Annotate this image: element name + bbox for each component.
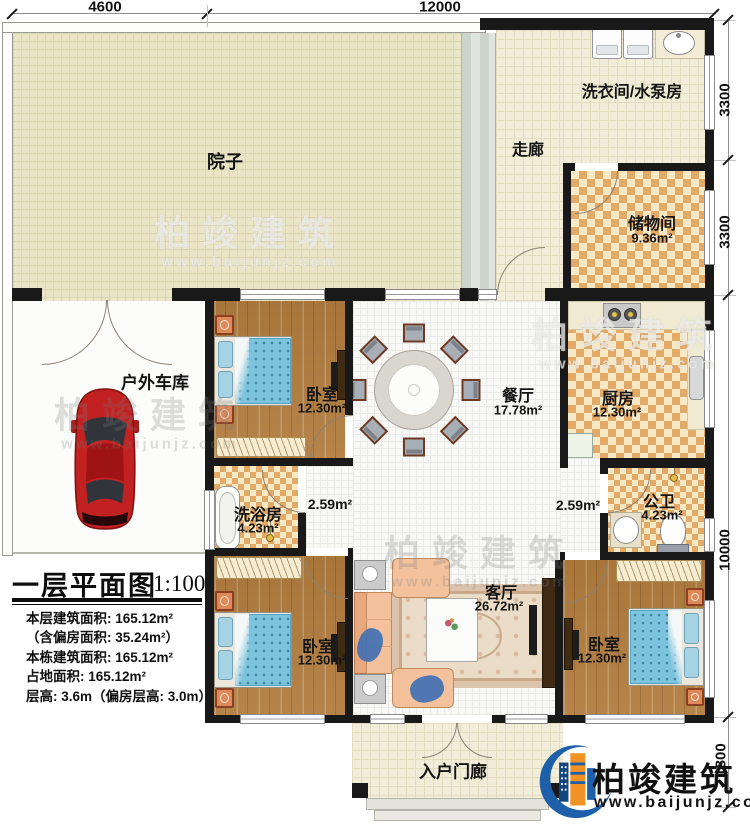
fridge-icon [567, 433, 593, 458]
sheet-fold [668, 610, 682, 684]
pillow-icon [218, 341, 233, 368]
room-area-shower: 4.23m² [237, 521, 278, 536]
room-area-bedroom-left: 12.30m² [298, 653, 346, 668]
wall [563, 163, 571, 295]
chair-icon [462, 379, 481, 401]
window [240, 289, 325, 300]
porch-step [366, 798, 549, 810]
room-label-corridor: 走廊 [512, 136, 544, 160]
room-label-laundry: 洗衣间/水泵房 [582, 78, 682, 102]
dimension-label: 3300 [717, 83, 734, 116]
floor-plan: 柏竣建筑 www.baijunjz.com 柏竣建筑 www.baijunjz.… [0, 0, 750, 833]
company-url-text: www.baijunjz.com [594, 794, 750, 812]
wall [348, 548, 353, 556]
ceiling-lamp-icon [670, 474, 678, 482]
wall [618, 163, 705, 171]
stat-line: （含偏房面积: 35.24m²） [26, 628, 212, 647]
room-area-kitchen: 12.30m² [593, 405, 641, 420]
pillow-icon [218, 617, 233, 647]
wall [205, 715, 240, 723]
sheet-fold [235, 614, 249, 686]
wall [205, 458, 353, 466]
wall [12, 288, 42, 301]
room-label-garage: 户外车库 [121, 369, 189, 394]
stat-line: 本层建筑面积: 165.12m² [26, 609, 212, 628]
wall [705, 130, 714, 190]
wall [405, 715, 422, 723]
wall [325, 288, 385, 301]
kitchen-sink-icon [689, 356, 704, 400]
wall [685, 715, 714, 723]
dimension-line [728, 20, 729, 807]
chair-icon [403, 324, 425, 343]
wall [492, 715, 505, 723]
room-area-dining: 17.78m² [494, 403, 542, 418]
window [704, 600, 715, 698]
tv-cabinet [542, 578, 556, 688]
wall [560, 552, 565, 560]
room-label-porch: 入户门廊 [419, 758, 487, 783]
wall [560, 301, 568, 458]
wall [345, 288, 353, 415]
window [585, 714, 685, 724]
flower-decor [442, 616, 460, 634]
burner-icon [608, 308, 621, 321]
window [505, 714, 548, 724]
window [704, 55, 715, 130]
title-underline [12, 604, 202, 605]
table-lamp-icon [362, 566, 378, 582]
car-icon [70, 386, 140, 532]
wall [705, 428, 714, 518]
wall [555, 560, 563, 715]
wall [600, 468, 608, 474]
room-area-hall-left: 2.59m² [308, 496, 352, 512]
dimension-label: 12000 [419, 0, 461, 16]
room-label-courtyard: 院子 [207, 148, 243, 174]
dimension-tick [708, 8, 719, 19]
wardrobe-icon [616, 560, 702, 582]
window [704, 190, 715, 265]
table-lamp-icon [362, 680, 378, 696]
tv-icon [529, 605, 537, 655]
faucet-icon [676, 33, 681, 38]
washing-machine-icon [623, 27, 653, 59]
nightstand-icon [215, 591, 234, 611]
wall [325, 715, 370, 723]
pillow-icon [684, 647, 699, 678]
wall [705, 265, 714, 330]
dining-table-center [408, 384, 420, 396]
pillow-icon [684, 613, 699, 644]
fence [2, 22, 486, 33]
dimension-tick [6, 8, 17, 19]
room-area-hall-right: 2.59m² [556, 497, 600, 513]
sink-icon [613, 516, 639, 544]
porch-step [374, 810, 541, 821]
wall [352, 783, 368, 798]
wardrobe-icon [216, 557, 302, 579]
wall [705, 18, 714, 55]
window [704, 330, 715, 428]
wall [480, 18, 714, 30]
title-underline [12, 598, 202, 602]
wall [608, 552, 705, 560]
building-stats: 本层建筑面积: 165.12m² （含偏房面积: 35.24m²） 本栋建筑面积… [26, 609, 212, 706]
nightstand-icon [686, 688, 704, 706]
wall [705, 552, 714, 600]
garage-edge [13, 552, 205, 554]
window [704, 518, 715, 552]
walkway-path [461, 33, 496, 301]
nightstand-icon [215, 315, 234, 335]
nightstand-icon [215, 404, 234, 424]
window [370, 714, 405, 724]
stat-line: 本栋建筑面积: 165.12m² [26, 648, 212, 667]
wall [545, 288, 705, 301]
nightstand-icon [686, 588, 704, 606]
plan-scale: 1:100 [153, 571, 205, 597]
dimension-label: 10000 [717, 529, 734, 571]
wall [600, 513, 608, 560]
window [478, 289, 497, 300]
wall [560, 458, 568, 468]
pillow-icon [218, 650, 233, 680]
sofa-cushion-line [366, 619, 392, 620]
washing-machine-icon [592, 27, 622, 59]
chair-icon [403, 438, 425, 457]
wardrobe-icon [216, 437, 306, 457]
wall [205, 548, 305, 556]
window [204, 490, 215, 550]
wall [460, 288, 478, 301]
burner-icon [624, 308, 637, 321]
stat-line: 层高: 3.6m（偏房层高: 3.0m） [26, 687, 212, 706]
room-area-living: 26.72m² [475, 599, 523, 614]
stat-line: 占地面积: 165.12m² [26, 667, 212, 686]
wall [563, 163, 575, 171]
window [385, 289, 460, 300]
pillow-icon [218, 371, 233, 398]
sheet-fold [235, 338, 249, 404]
tv-cabinet [564, 618, 573, 670]
window [240, 714, 325, 724]
room-area-bedroom-top: 12.30m² [298, 401, 346, 416]
wall [548, 715, 585, 723]
dimension-label: 3300 [717, 215, 734, 248]
nightstand-icon [215, 688, 234, 708]
wall [600, 458, 705, 468]
armchair-icon [392, 558, 450, 598]
room-area-toilet: 4.23m² [641, 508, 682, 523]
room-area-bedroom-right: 12.30m² [578, 651, 626, 666]
extension-line [207, 5, 208, 27]
room-area-storage: 9.36m² [631, 231, 672, 246]
dimension-label: 4600 [88, 0, 121, 16]
